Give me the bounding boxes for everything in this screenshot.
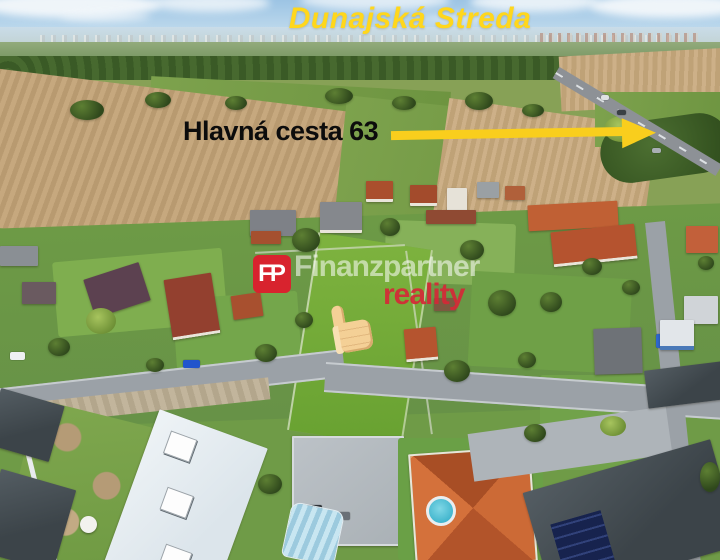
house-roof xyxy=(593,327,643,375)
roof-skylight xyxy=(159,487,194,519)
tree xyxy=(465,92,493,110)
round-pool xyxy=(426,496,456,526)
logo-letters: FP xyxy=(258,260,283,288)
blue-car xyxy=(183,360,200,368)
tree xyxy=(600,416,626,436)
house-roof xyxy=(22,282,56,304)
house-roof xyxy=(505,186,525,200)
roof-skylight xyxy=(158,544,193,560)
parasol xyxy=(80,516,97,533)
tree xyxy=(145,92,171,108)
hedge xyxy=(700,462,720,492)
tree xyxy=(582,258,602,275)
tree xyxy=(325,88,353,104)
tree xyxy=(380,218,400,236)
cloud xyxy=(150,0,270,12)
tree xyxy=(524,424,546,442)
cloud xyxy=(60,12,150,22)
house-roof xyxy=(404,327,439,363)
tree xyxy=(518,352,536,368)
tree xyxy=(540,292,562,312)
tree xyxy=(225,96,247,110)
tree xyxy=(146,358,164,372)
house-roof xyxy=(410,185,437,206)
tree xyxy=(70,100,104,120)
white-van xyxy=(10,352,25,360)
house-roof xyxy=(320,202,362,233)
house-roof xyxy=(0,246,38,266)
car xyxy=(652,148,661,153)
tree xyxy=(622,280,640,295)
car xyxy=(617,110,626,115)
thumb-fist xyxy=(338,318,375,353)
aerial-photo: Dunajská Streda Hlavná cesta 63 FP Finan… xyxy=(0,0,720,560)
house-roof xyxy=(164,273,221,341)
tree xyxy=(255,344,277,362)
house-roof xyxy=(686,226,718,253)
road-label: Hlavná cesta 63 xyxy=(183,116,378,147)
thumbs-up-icon xyxy=(327,299,384,362)
shed-roof xyxy=(426,210,476,224)
tree xyxy=(392,96,416,110)
tree xyxy=(444,360,470,382)
house-roof xyxy=(660,320,694,350)
house-roof xyxy=(477,182,499,198)
tree xyxy=(258,474,282,494)
yellow-right-arrow-head-icon xyxy=(622,118,657,149)
tree xyxy=(86,308,116,334)
house-roof xyxy=(366,181,393,202)
roof-skylight xyxy=(163,431,198,463)
cloud xyxy=(590,0,720,18)
tree xyxy=(698,256,714,270)
watermark-division: reality xyxy=(383,278,493,312)
tree xyxy=(522,104,544,117)
finanzpartner-logo-icon: FP xyxy=(253,255,291,293)
house-roof xyxy=(230,292,263,320)
city-title: Dunajská Streda xyxy=(260,2,560,36)
tree xyxy=(48,338,70,356)
distant-town-roofs xyxy=(540,33,700,42)
car xyxy=(601,95,609,100)
house-roof xyxy=(251,231,281,244)
tree xyxy=(292,228,320,252)
solar-panels xyxy=(550,510,616,560)
tree xyxy=(295,312,313,328)
pool-enclosure xyxy=(281,501,345,560)
